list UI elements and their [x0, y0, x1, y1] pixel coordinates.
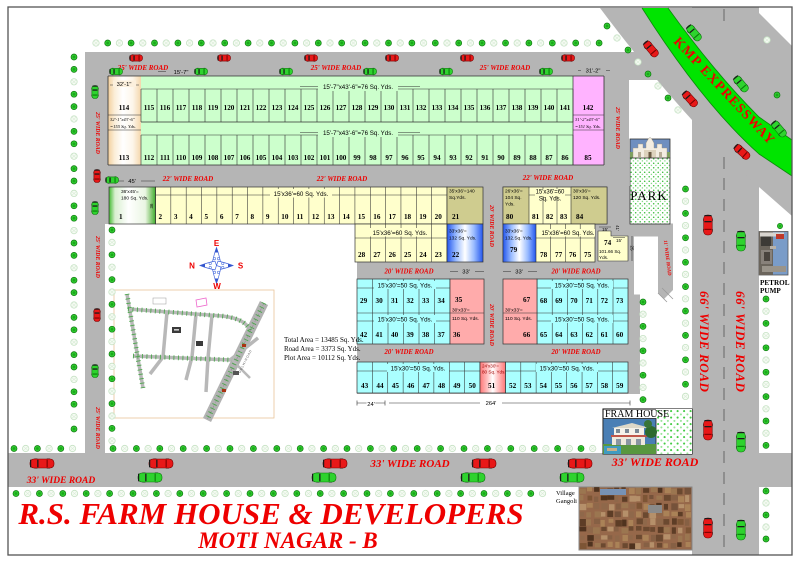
svg-text:80: 80	[506, 213, 514, 221]
svg-text:72: 72	[601, 297, 609, 305]
svg-text:44: 44	[376, 382, 384, 390]
svg-text:67: 67	[523, 296, 531, 304]
svg-text:6: 6	[220, 213, 224, 221]
svg-text:101: 101	[320, 154, 331, 162]
svg-text:105: 105	[256, 154, 267, 162]
svg-text:PUMP: PUMP	[760, 287, 781, 295]
svg-text:92: 92	[465, 154, 473, 162]
svg-text:118: 118	[192, 104, 203, 112]
svg-text:95: 95	[417, 154, 425, 162]
svg-text:36: 36	[149, 203, 154, 208]
svg-text:18: 18	[404, 213, 412, 221]
svg-text:76: 76	[569, 251, 577, 259]
svg-text:20' WIDE ROAD: 20' WIDE ROAD	[488, 303, 494, 347]
svg-text:25: 25	[630, 245, 635, 251]
svg-text:26'x36'=: 26'x36'=	[505, 189, 523, 195]
svg-text:97: 97	[385, 154, 393, 162]
svg-text:132 Sq. Yds.: 132 Sq. Yds.	[449, 236, 476, 242]
svg-text:24': 24'	[367, 402, 375, 408]
svg-text:34: 34	[438, 297, 446, 305]
svg-text:119: 119	[208, 104, 219, 112]
svg-text:50: 50	[469, 382, 477, 390]
svg-text:24'x30'=: 24'x30'=	[482, 364, 499, 369]
svg-text:32'-1": 32'-1"	[117, 82, 132, 88]
svg-text:41: 41	[376, 331, 384, 339]
svg-text:15'x30'=50 Sq. Yds.: 15'x30'=50 Sq. Yds.	[378, 317, 433, 324]
svg-text:15'x30'=50 Sq. Yds.: 15'x30'=50 Sq. Yds.	[378, 283, 433, 290]
svg-text:25' WIDE ROAD: 25' WIDE ROAD	[94, 111, 100, 155]
svg-text:96: 96	[401, 154, 409, 162]
svg-text:98: 98	[369, 154, 377, 162]
svg-text:100: 100	[336, 154, 347, 162]
svg-text:99: 99	[353, 154, 361, 162]
svg-text:85: 85	[584, 154, 592, 162]
svg-text:12: 12	[312, 213, 320, 221]
svg-text:45': 45'	[128, 179, 136, 185]
svg-text:22' WIDE ROAD: 22' WIDE ROAD	[316, 175, 367, 183]
svg-text:122: 122	[256, 104, 267, 112]
svg-text:5: 5	[205, 213, 209, 221]
svg-text:69: 69	[555, 297, 563, 305]
svg-text:130: 130	[384, 104, 395, 112]
svg-text:Yds.: Yds.	[505, 202, 515, 208]
svg-text:60: 60	[616, 331, 624, 339]
svg-text:20: 20	[435, 213, 443, 221]
svg-text:15'x36'=60: 15'x36'=60	[536, 190, 565, 196]
svg-text:79: 79	[510, 246, 518, 254]
svg-text:16: 16	[373, 213, 381, 221]
svg-text:20' WIDE ROAD: 20' WIDE ROAD	[551, 349, 601, 356]
svg-text:20' WIDE ROAD: 20' WIDE ROAD	[551, 269, 601, 276]
svg-text:9: 9	[266, 213, 270, 221]
svg-text:2: 2	[159, 213, 163, 221]
svg-text:N: N	[189, 262, 195, 271]
svg-text:75: 75	[584, 251, 592, 259]
svg-text:180 Sq. Yds.: 180 Sq. Yds.	[121, 196, 148, 202]
svg-text:107: 107	[224, 154, 235, 162]
svg-text:137: 137	[496, 104, 507, 112]
svg-text:68: 68	[540, 297, 548, 305]
svg-text:25' WIDE ROAD: 25' WIDE ROAD	[614, 106, 620, 150]
svg-text:141: 141	[560, 104, 571, 112]
svg-text:15'-7"x43'-6"=76 Sq. Yds.: 15'-7"x43'-6"=76 Sq. Yds.	[323, 84, 393, 91]
svg-text:108: 108	[208, 154, 219, 162]
svg-text:15'x36'=60 Sq. Yds.: 15'x36'=60 Sq. Yds.	[373, 230, 428, 237]
svg-text:54: 54	[540, 382, 548, 390]
svg-text:124: 124	[288, 104, 299, 112]
svg-text:86: 86	[561, 154, 569, 162]
svg-text:84: 84	[576, 213, 584, 221]
svg-text:15'x36'=60 Sq. Yds.: 15'x36'=60 Sq. Yds.	[274, 191, 329, 198]
svg-text:87: 87	[545, 154, 553, 162]
svg-text:140: 140	[544, 104, 555, 112]
svg-text:31: 31	[391, 297, 399, 305]
svg-text:24: 24	[419, 251, 427, 259]
svg-text:33' WIDE ROAD: 33' WIDE ROAD	[369, 458, 449, 470]
svg-text:66: 66	[523, 331, 531, 339]
svg-text:80 Sq. Yds.: 80 Sq. Yds.	[482, 370, 506, 375]
svg-text:38: 38	[422, 331, 430, 339]
svg-text:32'-1"x43'-6": 32'-1"x43'-6"	[110, 117, 135, 122]
svg-text:33' WIDE ROAD: 33' WIDE ROAD	[611, 455, 699, 469]
svg-text:E: E	[214, 239, 220, 248]
svg-text:41': 41'	[615, 225, 620, 231]
svg-text:15'x30'=50 Sq. Yds.: 15'x30'=50 Sq. Yds.	[555, 283, 610, 290]
svg-text:20' WIDE ROAD: 20' WIDE ROAD	[384, 349, 434, 356]
svg-text:58: 58	[601, 382, 609, 390]
svg-text:30'x33'=: 30'x33'=	[505, 308, 523, 314]
svg-text:15': 15'	[602, 227, 608, 232]
svg-text:135: 135	[464, 104, 475, 112]
svg-text:56: 56	[570, 382, 578, 390]
svg-text:15'x36'=60 Sq. Yds.: 15'x36'=60 Sq. Yds.	[541, 231, 594, 237]
svg-text:61: 61	[601, 331, 609, 339]
svg-text:102: 102	[304, 154, 315, 162]
svg-text:33'x36'=: 33'x36'=	[449, 229, 467, 235]
svg-text:106: 106	[240, 154, 251, 162]
svg-text:110: 110	[176, 154, 187, 162]
svg-text:15'-7": 15'-7"	[174, 70, 189, 76]
svg-text:110 Sq. Yds.: 110 Sq. Yds.	[452, 316, 479, 322]
svg-text:59: 59	[616, 382, 624, 390]
svg-text:Plot Area = 10112 Sq. Yds.: Plot Area = 10112 Sq. Yds.	[284, 354, 361, 362]
svg-text:Road Area = 3373 Sq. Yds.: Road Area = 3373 Sq. Yds.	[284, 345, 361, 353]
svg-text:104: 104	[272, 154, 283, 162]
svg-text:112: 112	[144, 154, 155, 162]
svg-text:35'x36'=140: 35'x36'=140	[449, 189, 475, 195]
svg-text:17: 17	[389, 213, 397, 221]
svg-text:Gangoli: Gangoli	[556, 498, 577, 505]
svg-text:10: 10	[281, 213, 289, 221]
svg-text:62: 62	[586, 331, 594, 339]
svg-text:35: 35	[455, 296, 463, 304]
svg-text:90: 90	[497, 154, 505, 162]
svg-text:55: 55	[555, 382, 563, 390]
svg-text:3: 3	[174, 213, 178, 221]
svg-text:PARK: PARK	[630, 188, 667, 203]
svg-text:29: 29	[360, 297, 368, 305]
svg-text:40: 40	[391, 331, 399, 339]
svg-text:Sq.Yds.: Sq.Yds.	[449, 195, 466, 201]
svg-text:31'-2"x43'-6": 31'-2"x43'-6"	[575, 117, 600, 122]
svg-text:115: 115	[144, 104, 155, 112]
svg-text:70: 70	[570, 297, 578, 305]
svg-text:78: 78	[540, 251, 548, 259]
svg-text:1: 1	[119, 213, 123, 221]
svg-text:125: 125	[304, 104, 315, 112]
svg-text:31'-2": 31'-2"	[586, 69, 601, 75]
svg-text:111: 111	[160, 154, 170, 162]
svg-text:103: 103	[288, 154, 299, 162]
svg-text:25' WIDE ROAD: 25' WIDE ROAD	[94, 406, 100, 450]
svg-text:113: 113	[119, 154, 130, 162]
svg-text:7: 7	[235, 213, 239, 221]
svg-text:20' WIDE ROAD: 20' WIDE ROAD	[384, 269, 434, 276]
svg-text:26: 26	[389, 251, 397, 259]
svg-text:46: 46	[407, 382, 415, 390]
svg-text:131: 131	[400, 104, 411, 112]
svg-text:51: 51	[488, 382, 496, 390]
svg-text:74: 74	[604, 239, 612, 247]
svg-text:33'x36'=: 33'x36'=	[505, 229, 523, 235]
svg-text:33': 33'	[515, 270, 523, 276]
svg-text:25' WIDE ROAD: 25' WIDE ROAD	[117, 64, 168, 72]
svg-text:114: 114	[119, 104, 130, 112]
svg-text:15': 15'	[616, 238, 622, 243]
svg-text:93: 93	[449, 154, 457, 162]
svg-text:47: 47	[423, 382, 431, 390]
svg-text:129: 129	[368, 104, 379, 112]
svg-text:28: 28	[358, 251, 366, 259]
svg-text:121: 121	[240, 104, 251, 112]
svg-text:PETROL: PETROL	[760, 279, 790, 287]
svg-text:66' WIDE ROAD: 66' WIDE ROAD	[697, 291, 712, 392]
svg-text:104 Sq.: 104 Sq.	[505, 195, 522, 201]
svg-text:33' WIDE ROAD: 33' WIDE ROAD	[26, 476, 96, 486]
svg-text:S: S	[238, 262, 244, 271]
svg-text:45: 45	[392, 382, 400, 390]
svg-text:120 Sq. Yds.: 120 Sq. Yds.	[573, 195, 600, 201]
svg-text:=155 Sq. Yds.: =155 Sq. Yds.	[110, 124, 136, 129]
svg-text:63: 63	[570, 331, 578, 339]
svg-text:132: 132	[416, 104, 427, 112]
svg-text:19: 19	[419, 213, 427, 221]
svg-text:64: 64	[555, 331, 563, 339]
svg-text:25' WIDE ROAD: 25' WIDE ROAD	[310, 64, 361, 72]
svg-text:101.66 Sq.: 101.66 Sq.	[599, 249, 621, 254]
svg-text:39: 39	[407, 331, 415, 339]
svg-text:13: 13	[327, 213, 335, 221]
svg-text:66' WIDE ROAD: 66' WIDE ROAD	[733, 291, 748, 392]
svg-text:20' WIDE ROAD: 20' WIDE ROAD	[488, 204, 494, 248]
svg-text:15'-7"x43'-6"=76 Sq. Yds.: 15'-7"x43'-6"=76 Sq. Yds.	[323, 130, 393, 137]
svg-text:22' WIDE ROAD: 22' WIDE ROAD	[522, 174, 573, 182]
svg-text:15'x30'=50 Sq. Yds.: 15'x30'=50 Sq. Yds.	[555, 317, 610, 324]
svg-text:128: 128	[352, 104, 363, 112]
svg-text:123: 123	[272, 104, 283, 112]
svg-text:49: 49	[453, 382, 461, 390]
svg-text:264': 264'	[486, 401, 497, 407]
svg-text:21: 21	[452, 213, 460, 221]
svg-text:126: 126	[320, 104, 331, 112]
svg-text:Total Area = 13485 Sq. Yds.: Total Area = 13485 Sq. Yds.	[284, 336, 364, 344]
svg-text:30: 30	[376, 297, 384, 305]
svg-text:37: 37	[438, 331, 446, 339]
svg-text:57: 57	[586, 382, 594, 390]
svg-text:48: 48	[438, 382, 446, 390]
svg-text:117: 117	[176, 104, 187, 112]
svg-text:25' WIDE ROAD: 25' WIDE ROAD	[479, 64, 530, 72]
svg-text:Yds.: Yds.	[599, 255, 608, 260]
svg-text:53: 53	[524, 382, 532, 390]
svg-text:81: 81	[532, 213, 540, 221]
svg-text:43: 43	[361, 382, 369, 390]
svg-text:82: 82	[546, 213, 554, 221]
svg-text:134: 134	[448, 104, 459, 112]
svg-text:120: 120	[224, 104, 235, 112]
svg-text:132.Sq. Yds.: 132.Sq. Yds.	[505, 236, 532, 242]
svg-text:25: 25	[404, 251, 412, 259]
svg-text:27: 27	[373, 251, 381, 259]
svg-text:11: 11	[297, 213, 304, 221]
svg-text:33': 33'	[462, 270, 470, 276]
svg-text:Village: Village	[556, 490, 575, 497]
svg-text:30'x33'=: 30'x33'=	[452, 308, 470, 314]
svg-text:88: 88	[529, 154, 537, 162]
svg-text:=151 Sq. Yds.: =151 Sq. Yds.	[575, 124, 601, 129]
svg-text:77: 77	[555, 251, 563, 259]
svg-text:136: 136	[480, 104, 491, 112]
svg-text:32: 32	[407, 297, 415, 305]
svg-text:71: 71	[586, 297, 594, 305]
svg-text:23: 23	[435, 251, 443, 259]
svg-text:110 Sq. Yds.: 110 Sq. Yds.	[505, 316, 532, 322]
svg-text:36'x45'=: 36'x45'=	[121, 189, 139, 195]
svg-text:116: 116	[160, 104, 171, 112]
svg-text:109: 109	[192, 154, 203, 162]
svg-text:138: 138	[512, 104, 523, 112]
svg-text:15: 15	[358, 213, 366, 221]
svg-text:127: 127	[336, 104, 347, 112]
svg-text:73: 73	[616, 297, 624, 305]
svg-text:R.S. FARM HOUSE & DEVELOPERS: R.S. FARM HOUSE & DEVELOPERS	[17, 496, 523, 531]
svg-text:4: 4	[189, 213, 193, 221]
svg-text:25' WIDE ROAD: 25' WIDE ROAD	[94, 235, 100, 279]
svg-text:15'x30'=50 Sq. Yds.: 15'x30'=50 Sq. Yds.	[540, 366, 595, 373]
svg-text:65: 65	[540, 331, 548, 339]
svg-text:94: 94	[433, 154, 441, 162]
svg-text:22' WIDE ROAD: 22' WIDE ROAD	[162, 175, 213, 183]
svg-text:91: 91	[481, 154, 489, 162]
svg-text:22: 22	[452, 251, 460, 259]
svg-text:36: 36	[453, 331, 461, 339]
svg-text:15'x30'=50 Sq. Yds.: 15'x30'=50 Sq. Yds.	[391, 366, 446, 373]
svg-text:89: 89	[513, 154, 521, 162]
svg-text:33: 33	[422, 297, 430, 305]
svg-text:14: 14	[343, 213, 351, 221]
svg-text:30'x36'=: 30'x36'=	[573, 189, 591, 195]
svg-text:MOTI NAGAR - B: MOTI NAGAR - B	[197, 528, 378, 553]
svg-text:8: 8	[251, 213, 255, 221]
svg-text:133: 133	[432, 104, 443, 112]
svg-text:139: 139	[528, 104, 539, 112]
svg-text:142: 142	[583, 104, 594, 112]
svg-text:Sq. Yds.: Sq. Yds.	[539, 197, 562, 203]
svg-text:83: 83	[560, 213, 568, 221]
svg-text:52: 52	[509, 382, 517, 390]
